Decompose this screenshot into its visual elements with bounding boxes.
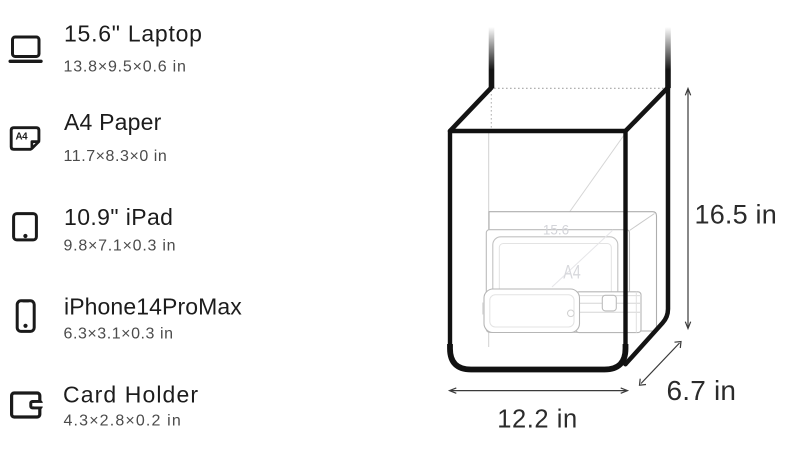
- svg-text:10.9" iPad: 10.9" iPad: [64, 204, 173, 230]
- svg-text:Card Holder: Card Holder: [63, 381, 199, 407]
- svg-text:15.6: 15.6: [543, 223, 569, 238]
- svg-text:12.2 in: 12.2 in: [497, 406, 577, 434]
- svg-text:6.3×3.1×0.3 in: 6.3×3.1×0.3 in: [64, 326, 174, 343]
- svg-text:11.7×8.3×0 in: 11.7×8.3×0 in: [64, 148, 168, 165]
- svg-text:4.3×2.8×0.2 in: 4.3×2.8×0.2 in: [64, 413, 182, 430]
- svg-text:13.8×9.5×0.6 in: 13.8×9.5×0.6 in: [64, 59, 187, 76]
- svg-text:15.6" Laptop: 15.6" Laptop: [64, 21, 203, 47]
- svg-text:iPhone14ProMax: iPhone14ProMax: [64, 293, 242, 319]
- svg-text:A4 Paper: A4 Paper: [64, 109, 162, 135]
- svg-text:A4: A4: [16, 131, 29, 142]
- svg-text:6.7 in: 6.7 in: [667, 375, 737, 406]
- svg-text:9.8×7.1×0.3 in: 9.8×7.1×0.3 in: [64, 238, 177, 255]
- svg-text:16.5 in: 16.5 in: [695, 199, 777, 229]
- svg-text:A4: A4: [563, 262, 581, 283]
